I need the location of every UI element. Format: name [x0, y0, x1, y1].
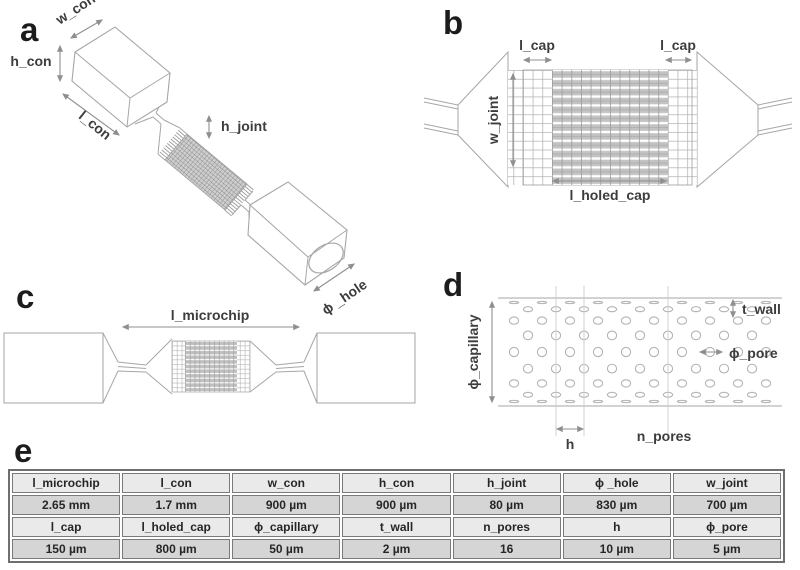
label-l-cap-left: l_cap: [519, 37, 555, 53]
panel-letter-d: d: [443, 266, 463, 303]
left-connector: [4, 333, 103, 403]
table-cell: l_cap: [12, 517, 120, 537]
table-cell: 50 µm: [232, 539, 340, 559]
label-h-joint: h_joint: [221, 118, 267, 134]
table-cell: l_holed_cap: [122, 517, 230, 537]
table-cell: w_con: [232, 473, 340, 493]
table-cell: l_microchip: [12, 473, 120, 493]
table-cell: h_joint: [453, 473, 561, 493]
table-cell: 150 µm: [12, 539, 120, 559]
parameter-table: l_microchip l_con w_con h_con h_joint ϕ …: [8, 469, 785, 563]
label-h: h: [566, 436, 575, 452]
table-cell: 2.65 mm: [12, 495, 120, 515]
figure-drawing: a w_con h_con l_con h_joint ϕ _hole: [0, 0, 800, 462]
label-n-pores: n_pores: [637, 428, 692, 444]
table-value-row: 2.65 mm 1.7 mm 900 µm 900 µm 80 µm 830 µ…: [12, 495, 781, 515]
table-cell: w_joint: [673, 473, 781, 493]
label-l-microchip: l_microchip: [171, 307, 250, 323]
table-cell: n_pores: [453, 517, 561, 537]
label-l-holed-cap: l_holed_cap: [570, 187, 651, 203]
connector-box-2: [248, 182, 349, 285]
panel-letter-a: a: [20, 11, 39, 48]
label-w-con: w_con: [52, 0, 98, 28]
panel-d: d ϕ_capillary t_wall ϕ_pore h n_pores: [443, 266, 782, 452]
table-cell: l_con: [122, 473, 230, 493]
microchip-shaded: [185, 341, 237, 392]
table-cell: 800 µm: [122, 539, 230, 559]
label-l-con: l_con: [76, 107, 114, 142]
pore-pitch-guides: [556, 286, 668, 436]
label-w-joint: w_joint: [485, 96, 501, 146]
table-cell: 900 µm: [342, 495, 450, 515]
label-h-con: h_con: [10, 53, 51, 69]
label-l-cap-right: l_cap: [660, 37, 696, 53]
table-cell: t_wall: [342, 517, 450, 537]
table-cell: 80 µm: [453, 495, 561, 515]
table-cell: 700 µm: [673, 495, 781, 515]
table-header-row: l_microchip l_con w_con h_con h_joint ϕ …: [12, 473, 781, 493]
right-connector: [317, 333, 415, 403]
table-cell: ϕ_pore: [673, 517, 781, 537]
holed-capillary-shaded: [552, 70, 668, 185]
table-cell: h_con: [342, 473, 450, 493]
table-cell: h: [563, 517, 671, 537]
table-cell: 900 µm: [232, 495, 340, 515]
table-cell: ϕ _hole: [563, 473, 671, 493]
label-phi-capillary: ϕ_capillary: [465, 314, 481, 389]
joint-band-hatched: [165, 134, 247, 210]
label-t-wall: t_wall: [742, 301, 781, 317]
capillary-ends-left: [508, 70, 523, 185]
table-cell: 5 µm: [673, 539, 781, 559]
table-cell: 2 µm: [342, 539, 450, 559]
label-phi-pore: ϕ_pore: [729, 345, 778, 361]
table-header-row: l_cap l_holed_cap ϕ_capillary t_wall n_p…: [12, 517, 781, 537]
dim-arrow-w-con: [71, 20, 102, 38]
right-funnel: [697, 52, 758, 187]
panel-letter-c: c: [16, 278, 34, 315]
capillary-ends-right: [692, 70, 697, 185]
figure: a w_con h_con l_con h_joint ϕ _hole: [0, 0, 800, 570]
table-cell: 16: [453, 539, 561, 559]
panel-letter-e: e: [14, 432, 32, 470]
table-cell: ϕ_capillary: [232, 517, 340, 537]
panel-b: b l_cap l_cap w_joint l_holed_cap: [424, 4, 792, 203]
table-value-row: 150 µm 800 µm 50 µm 2 µm 16 10 µm 5 µm: [12, 539, 781, 559]
table-cell: 830 µm: [563, 495, 671, 515]
table-cell: 1.7 mm: [122, 495, 230, 515]
panel-letter-b: b: [443, 4, 463, 41]
panel-a: a w_con h_con l_con h_joint ϕ _hole: [10, 0, 370, 318]
table-cell: 10 µm: [563, 539, 671, 559]
